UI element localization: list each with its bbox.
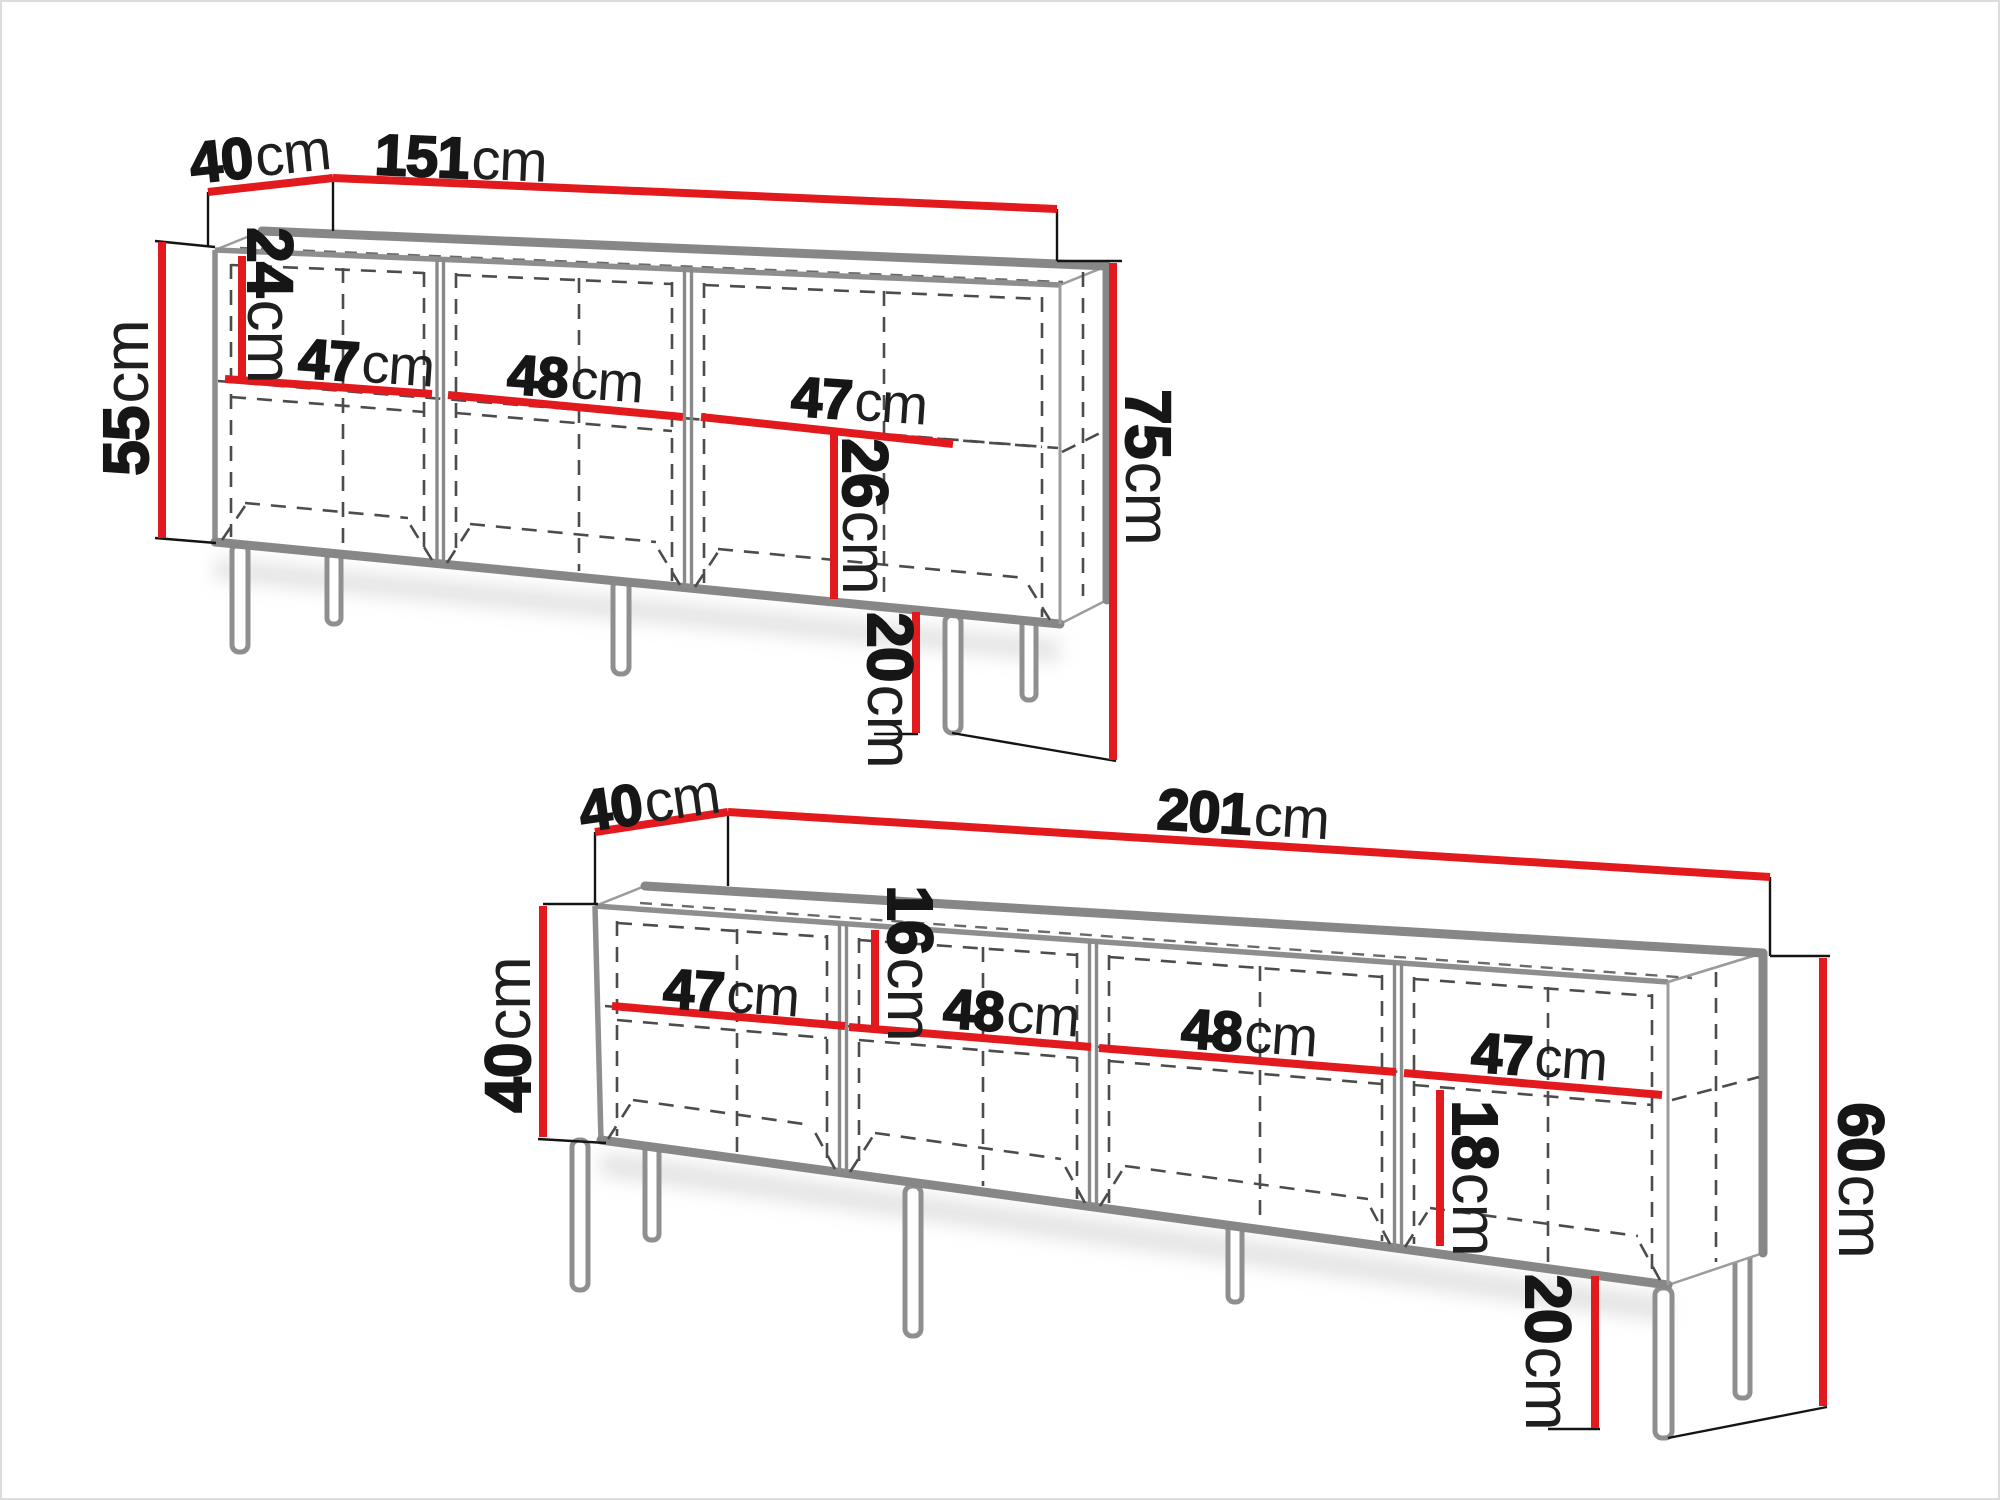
dim-label-leg-height: 20cm [1512, 1274, 1584, 1430]
dim-label-width: 201cm [1155, 777, 1331, 852]
furniture-dimension-diagram: 40cm 151cm 55cm 24cm 47cm 48cm 47cm 26cm… [0, 0, 2000, 1500]
leg [572, 1140, 588, 1290]
leg [1655, 1288, 1672, 1438]
dim-label-comp3: 47cm [789, 364, 929, 436]
leg [1735, 1250, 1750, 1398]
dim-label-body-height: 40cm [472, 957, 544, 1113]
dim-label-width: 151cm [373, 122, 548, 194]
dim-label-body-height: 55cm [90, 320, 162, 476]
leg [613, 580, 629, 674]
leg [905, 1186, 921, 1336]
dim-label-comp2: 48cm [941, 976, 1081, 1048]
leg [232, 544, 248, 652]
dim-label-lower-inner: 18cm [1439, 1100, 1511, 1256]
leg [945, 615, 961, 733]
dim-label-upper-inner: 24cm [234, 227, 306, 383]
dim-label-leg-height: 20cm [854, 612, 926, 768]
dim-label-comp1: 47cm [661, 956, 801, 1028]
dim-label-comp4: 47cm [1469, 1020, 1609, 1092]
leg [327, 552, 341, 624]
dim-label-total-height: 75cm [1112, 389, 1184, 545]
dim-label-upper-inner: 16cm [874, 885, 946, 1041]
dim-label-comp1: 47cm [296, 326, 436, 398]
dim-label-comp3: 48cm [1179, 996, 1319, 1068]
dim-label-lower-inner: 26cm [829, 438, 901, 594]
dim-label-total-height: 60cm [1825, 1102, 1897, 1258]
dim-label-comp2: 48cm [505, 342, 645, 414]
